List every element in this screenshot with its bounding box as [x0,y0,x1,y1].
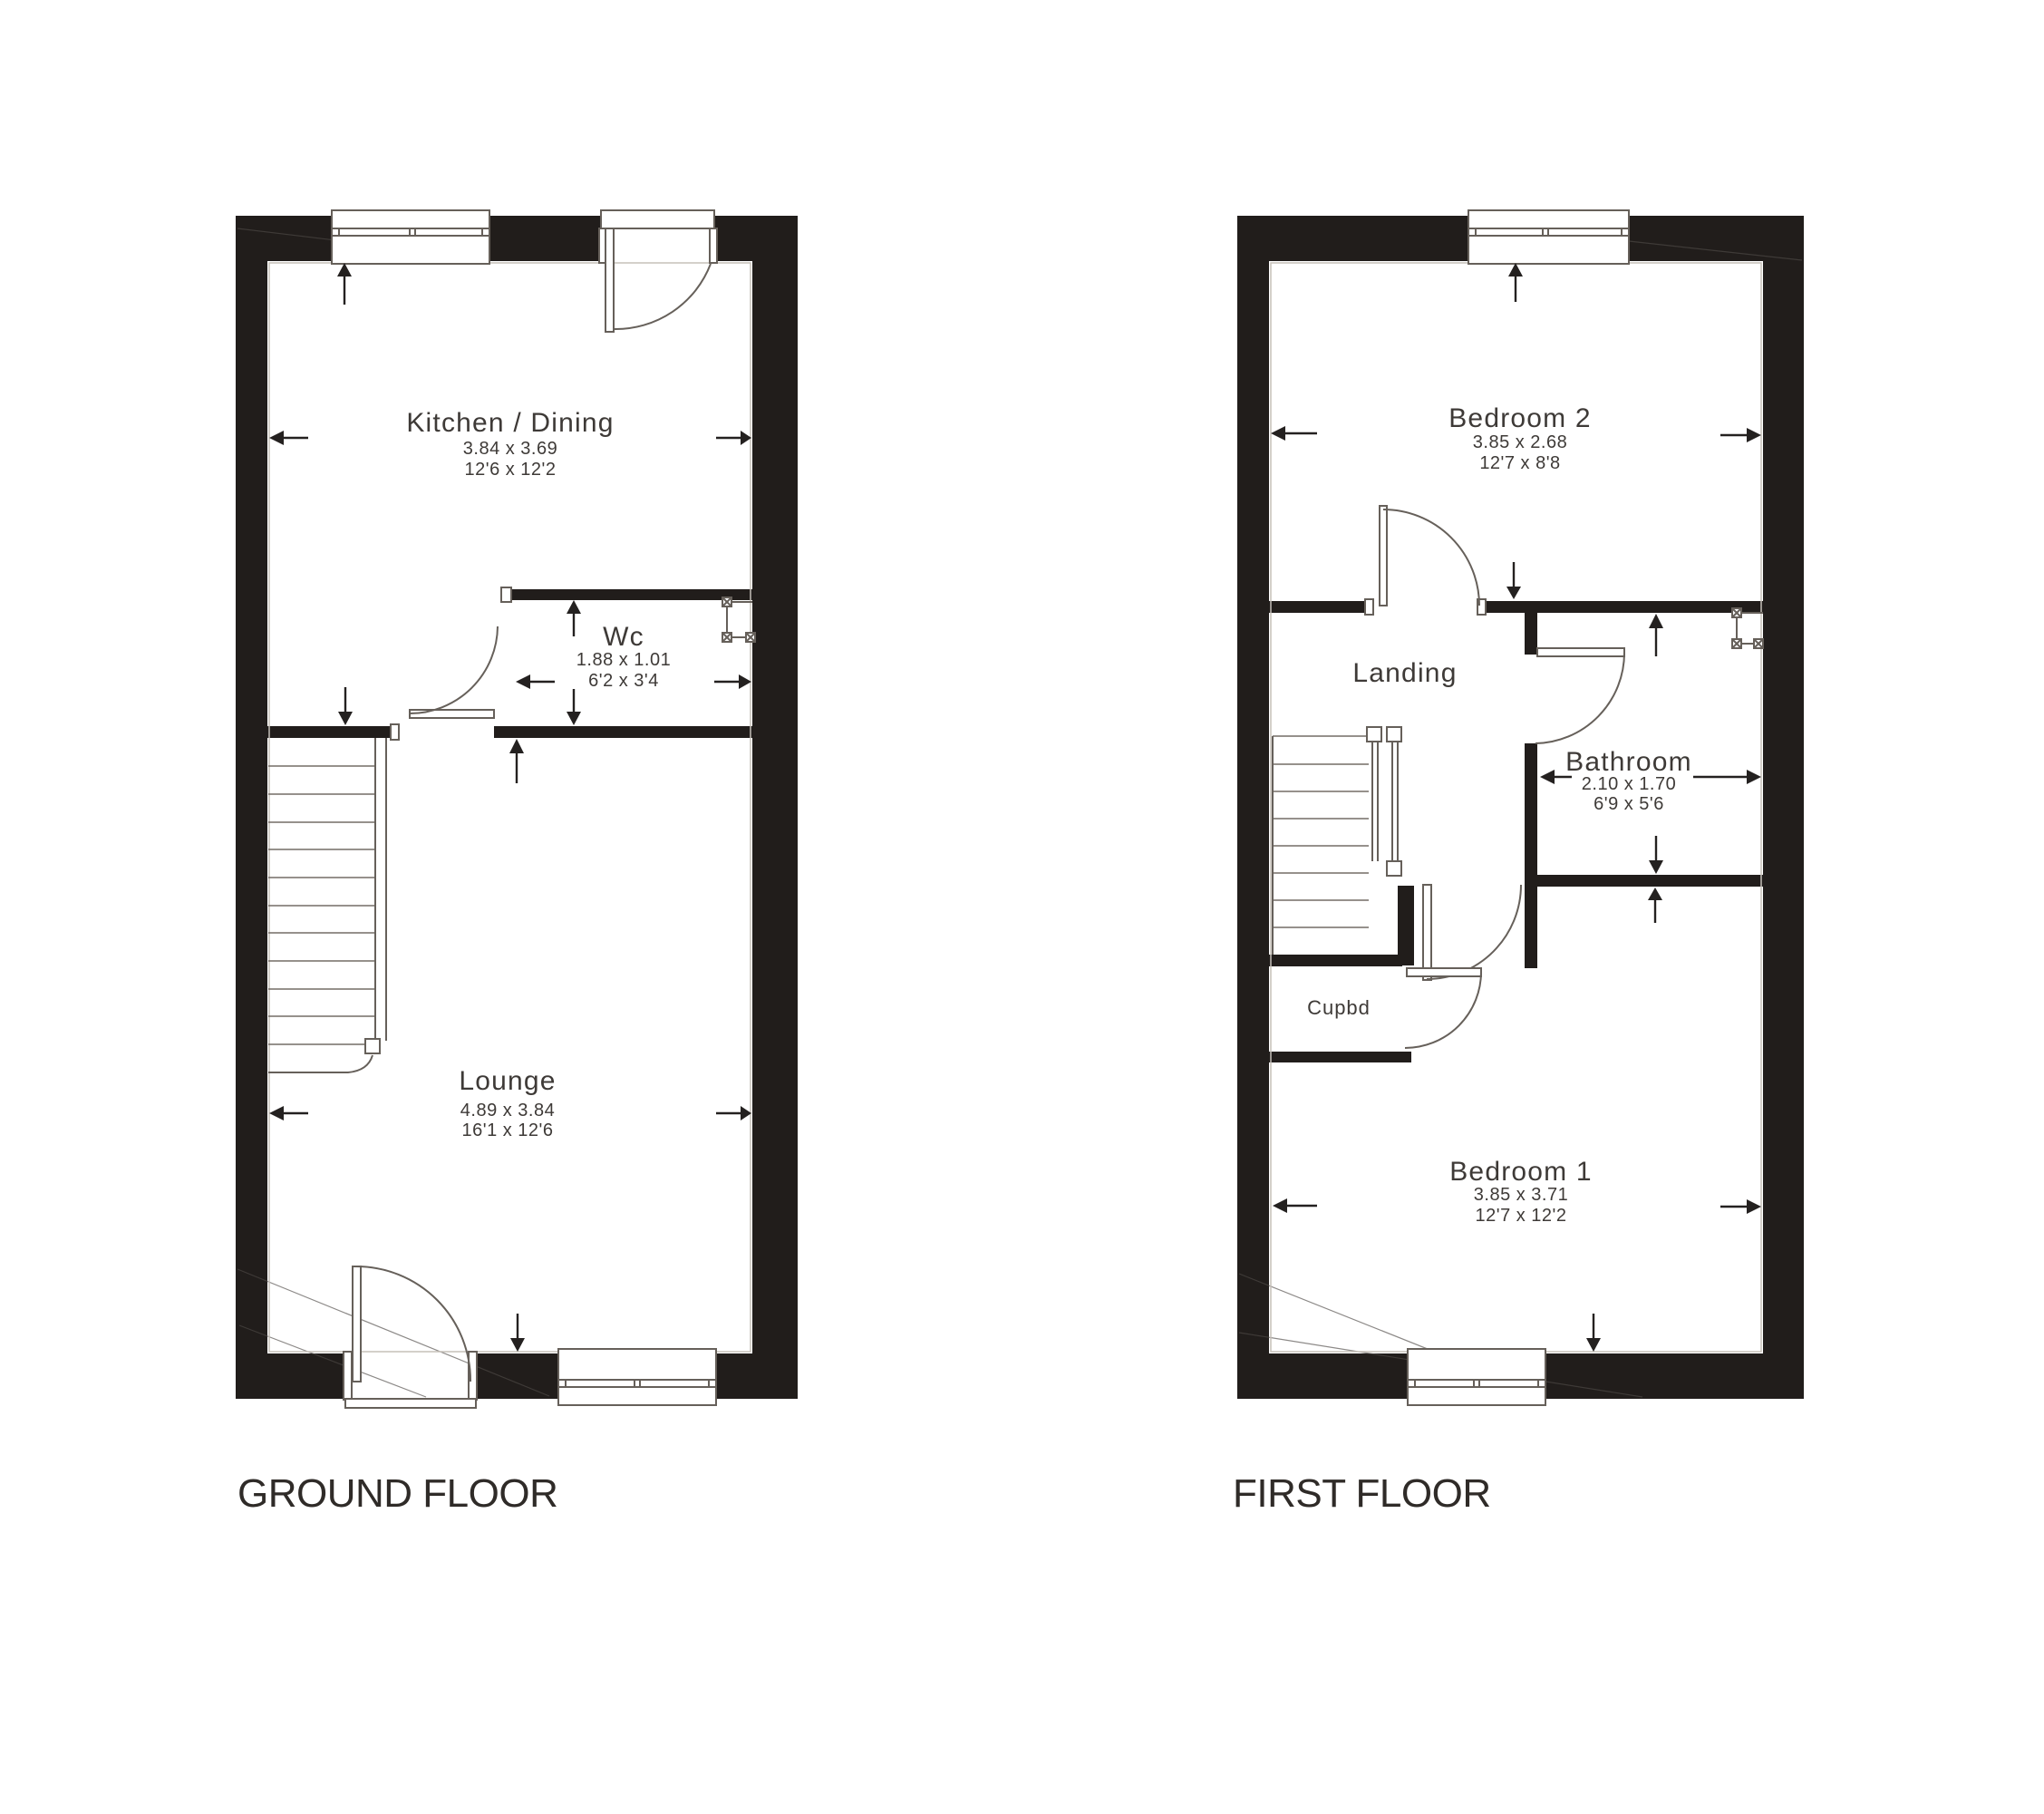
door-arc [1535,653,1624,743]
dim-arrow-bath-up [1649,614,1663,656]
bedroom1-door [1423,885,1521,980]
door-leaf [353,1266,361,1382]
dim-arrow-hall-down [338,687,353,725]
wall-bath-west [1525,743,1537,968]
wall-left [1237,216,1269,1399]
bedroom2-label: Bedroom 2 [1448,403,1592,433]
wc-dim-metric: 1.88 x 1.01 [576,650,671,670]
wc-label: Wc [603,622,644,652]
cupboard-door [1405,968,1481,1048]
door-leaf [1537,648,1624,656]
dim-arrow-bed1-right [1720,1199,1761,1214]
door-leaf [410,710,494,718]
door-threshold [345,1399,476,1408]
bathroom-dim-imperial: 6'9 x 5'6 [1594,794,1664,814]
wall-bath-stub [1525,613,1537,655]
door-leaf [605,228,614,332]
ground-stairs [268,738,386,1072]
first-stairs [1273,727,1401,955]
wall-left [236,216,267,1399]
dim-arrow-bed2-up [1508,263,1523,302]
dim-arrow-lounge-right [716,1106,751,1120]
door-arc [614,264,711,329]
door-arc [410,626,498,713]
wall-bed2-right [1477,601,1763,613]
dim-arrow-bath-down [1649,836,1663,874]
bathroom-label: Bathroom [1565,747,1692,777]
wc-dim-imperial: 6'2 x 3'4 [588,671,659,691]
wall-bottom-right [1544,1353,1804,1399]
dim-arrow-wc-up [567,600,581,636]
stair-newel [1387,727,1401,742]
bathroom-fixture [1732,608,1763,648]
landing-label: Landing [1352,658,1457,688]
dim-arrow-kitchen-left [269,431,308,445]
first-floor-plan: Bedroom 2 3.85 x 2.68 12'7 x 8'8 Landing… [1237,210,1804,1405]
door-jamb [710,228,717,263]
dim-arrow-wc-right [714,674,751,689]
wall-bottom-right [714,1353,798,1399]
ground-wc-door [391,587,511,740]
bathroom-door [1535,648,1624,743]
dim-arrow-lounge-up [509,739,524,783]
ground-labels: Kitchen / Dining 3.84 x 3.69 12'6 x 12'2… [406,408,671,1140]
dim-arrow-wc-down [567,689,581,725]
dim-arrow-bed2-down [1506,562,1521,599]
door-jamb [391,724,399,740]
wall-hall-right [494,726,752,738]
ground-window-top [332,210,489,264]
wall-stairwell [1260,955,1402,966]
kitchen-dim-metric: 3.84 x 3.69 [463,439,557,459]
lounge-label: Lounge [459,1066,556,1096]
floorplan-page: Kitchen / Dining 3.84 x 3.69 12'6 x 12'2… [0,0,2044,1814]
dim-arrow-bed1-up [1648,888,1662,923]
door-arc [1383,509,1479,606]
ground-back-door [599,210,717,332]
wall-right [752,216,798,1399]
wall-bottom-mid [474,1353,560,1399]
dim-arrow-bed2-left [1271,426,1317,441]
first-floor-title: FIRST FLOOR [1233,1471,1491,1516]
bedroom2-dim-metric: 3.85 x 2.68 [1473,432,1567,452]
kitchen-label: Kitchen / Dining [406,408,614,438]
wall-bed2-left [1269,601,1369,613]
dim-arrow-bed1-down [1586,1314,1601,1352]
dim-arrow-bed2-right [1720,428,1761,442]
dim-arrow-bed1-left [1273,1198,1317,1213]
door-arc [1427,885,1521,979]
stair-bottom-edge [268,1055,373,1072]
ground-window-bottom [558,1349,716,1405]
first-labels: Bedroom 2 3.85 x 2.68 12'7 x 8'8 Landing… [1307,403,1692,1226]
bedroom1-label: Bedroom 1 [1449,1157,1593,1187]
dim-arrow-kitchen-right [716,431,751,445]
cupboard-label: Cupbd [1307,996,1371,1019]
lounge-dim-imperial: 16'1 x 12'6 [462,1120,554,1140]
dim-arrow-lounge-left [269,1106,308,1120]
door-leaf [1423,885,1431,980]
door-jamb [344,1352,352,1400]
ground-floor-title: GROUND FLOOR [237,1471,557,1516]
bedroom2-dim-imperial: 12'7 x 8'8 [1479,453,1560,473]
wall-hall-left [267,726,399,738]
bedroom1-dim-metric: 3.85 x 3.71 [1474,1185,1568,1205]
first-window-top [1468,210,1629,264]
door-leaf [1380,506,1387,606]
wall-right [1763,216,1804,1399]
bathroom-dim-metric: 2.10 x 1.70 [1582,774,1676,794]
wall-top-mid [488,216,603,261]
dim-arrow-kitchen-up [337,263,352,305]
door-leaf [1407,968,1481,976]
stair-newel [1387,861,1401,876]
door-jamb [501,587,511,602]
wall-top-left [1237,216,1470,261]
bedroom1-dim-imperial: 12'7 x 12'2 [1476,1206,1567,1226]
wall-cupbd-bottom [1260,1052,1411,1062]
dim-arrow-bath-right [1693,770,1761,784]
stair-newel [1367,727,1381,742]
bedroom2-door [1365,506,1486,615]
wall-bed1-top [1537,875,1763,887]
dim-arrow-wc-left [516,674,555,689]
door-jamb [1365,599,1373,615]
ground-front-door [344,1266,477,1408]
stair-newel [365,1039,380,1053]
ground-floor-plan: Kitchen / Dining 3.84 x 3.69 12'6 x 12'2… [236,210,798,1408]
kitchen-dim-imperial: 12'6 x 12'2 [465,460,557,480]
first-window-bottom [1408,1349,1545,1405]
wall-landing-stub [1398,886,1414,965]
lounge-dim-metric: 4.89 x 3.84 [460,1101,555,1120]
wall-bottom-left [1237,1353,1409,1399]
door-recess [601,210,714,228]
dim-arrow-lounge-down [510,1314,525,1352]
door-arc [1405,972,1481,1048]
ground-walls [236,216,798,1399]
wall-wc-top [511,589,752,600]
